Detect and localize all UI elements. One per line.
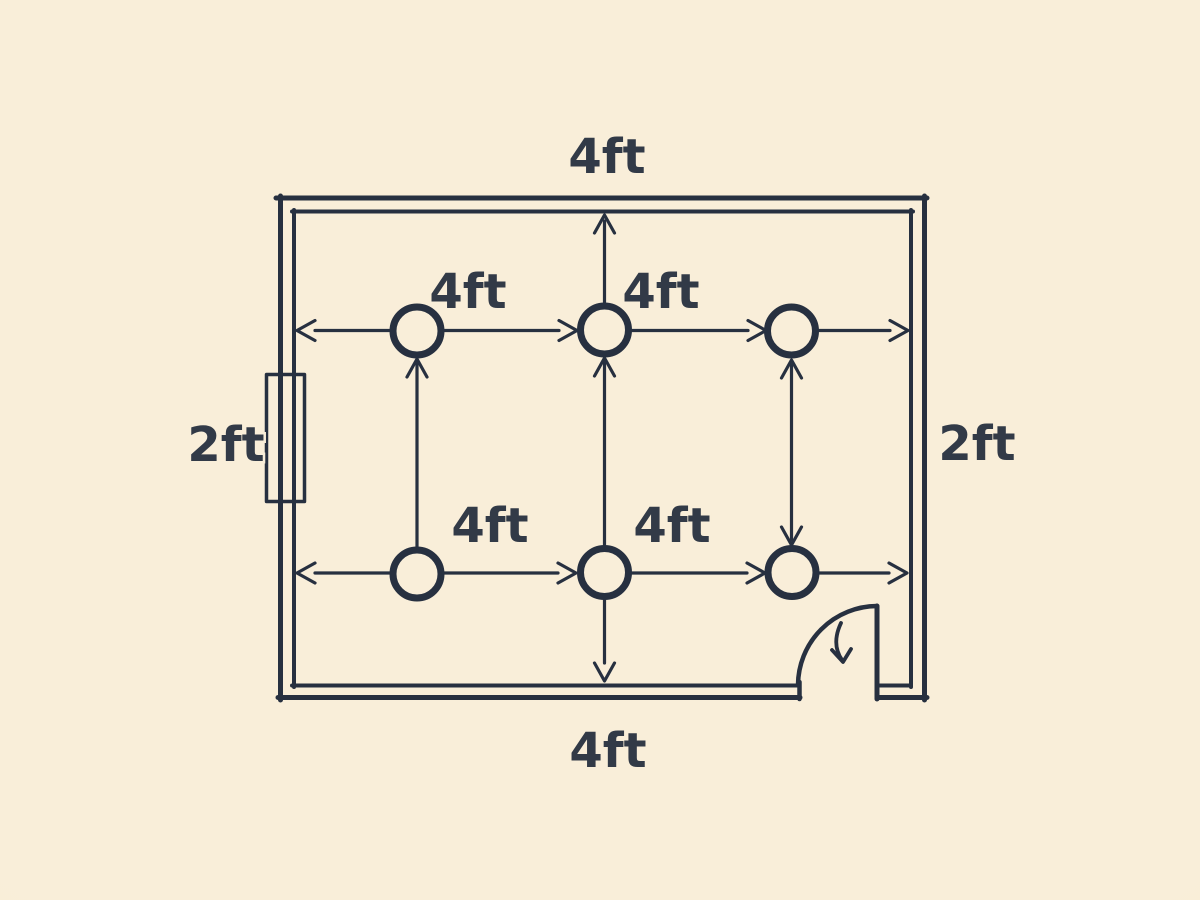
spacing-label-bottom-row-right: 4ft	[633, 498, 710, 554]
room-inner-wall	[292, 210, 913, 687]
fixture-circle-top-right	[768, 307, 816, 355]
arrow-center-column-between-rows	[595, 358, 615, 545]
door	[798, 606, 877, 699]
arrow-top-row-to-left-wall	[297, 321, 391, 341]
arrow-left-column-between-rows	[407, 359, 427, 547]
spacing-label-bottom-row-left: 4ft	[451, 498, 528, 554]
arrow-bottom-row-left-to-center	[443, 563, 576, 583]
arrow-bottom-row-center-to-right	[631, 563, 766, 583]
arrow-top-row-center-to-right	[631, 321, 767, 341]
spacing-label-top-row-left: 4ft	[429, 264, 506, 320]
floor-plan-canvas: 4ft 4ft 2ft 2ft 4ft 4ft 4ft 4ft	[0, 0, 1200, 900]
arrow-bottom-center-to-bottom-wall	[595, 599, 615, 681]
window-symbol	[267, 375, 305, 502]
arrow-top-row-left-to-center	[443, 321, 577, 341]
arrow-right-column-between-rows-double	[782, 360, 802, 545]
arrow-bottom-row-to-left-wall	[297, 563, 391, 583]
spacing-label-top-row-right: 4ft	[622, 264, 699, 320]
arrow-top-center-to-top-wall	[595, 215, 615, 303]
fixture-circle-bottom-center	[581, 549, 629, 597]
fixture-circle-top-center	[581, 306, 629, 354]
dimension-label-top-wall: 4ft	[568, 129, 645, 185]
arrow-top-row-to-right-wall	[818, 321, 909, 341]
arrow-bottom-row-to-right-wall	[818, 563, 907, 583]
dimension-arrows	[297, 215, 908, 681]
dimension-label-bottom-wall: 4ft	[569, 723, 646, 779]
floor-plan-drawing: 4ft 4ft 2ft 2ft 4ft 4ft 4ft 4ft	[0, 0, 1200, 900]
fixture-circle-bottom-right	[768, 549, 816, 597]
fixture-circle-bottom-left	[393, 550, 441, 598]
dimension-label-right-wall: 2ft	[938, 416, 1015, 472]
dimension-label-left-wall: 2ft	[187, 417, 264, 473]
dimension-labels: 4ft 4ft 2ft 2ft 4ft 4ft 4ft 4ft	[187, 129, 1015, 779]
